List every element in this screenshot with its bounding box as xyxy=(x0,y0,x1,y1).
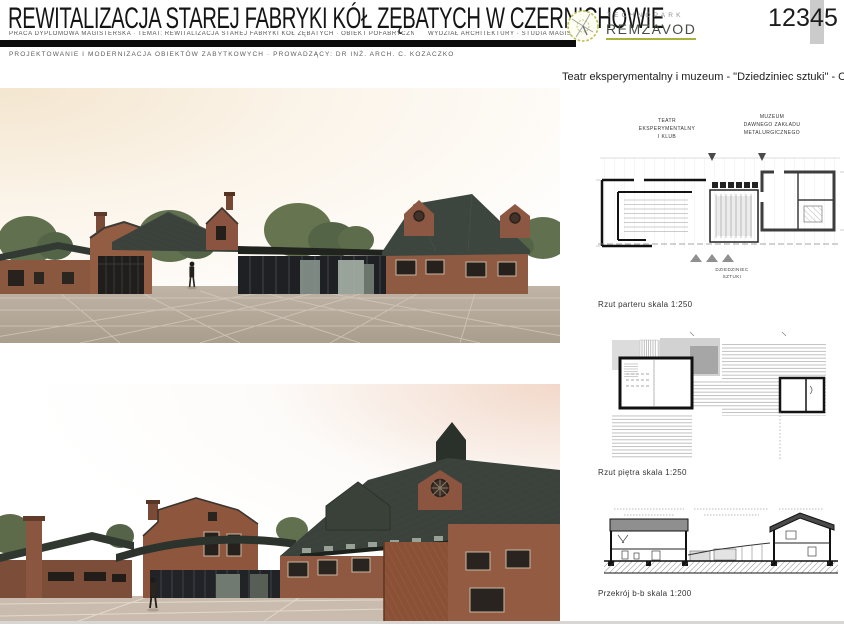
section-caption: Przekrój b-b skala 1:200 xyxy=(598,589,691,598)
logo-name: REMZAVOD xyxy=(606,21,696,40)
plaza xyxy=(0,286,560,343)
meta-line-right: WYDZIAŁ ARCHITEKTURY · STUDIA MAGISTERSK… xyxy=(428,31,576,37)
logo-text-top: TECHNOPARK xyxy=(607,12,684,19)
render-perspective-view xyxy=(0,384,560,624)
meta-line-left: PRACA DYPLOMOWA MAGISTERSKA · TEMAT: REW… xyxy=(9,31,414,37)
section-drawing: Przekrój b-b skala 1:200 xyxy=(594,503,844,603)
pager: 1 2 3 4 5 xyxy=(768,0,838,44)
glass-corridor xyxy=(238,246,392,294)
presentation-board: REWITALIZACJA STAREJ FABRYKI KÓŁ ZĘBATYC… xyxy=(0,0,844,624)
divider-bar xyxy=(0,40,576,47)
pager-digit: 5 xyxy=(824,0,838,44)
courtyard-tree-icons xyxy=(690,254,734,262)
technopark-logo: TECHNOPARK REMZAVOD xyxy=(563,3,693,49)
theatre-label: TEATR EKSPERYMENTALNY I KLUB xyxy=(616,118,718,141)
pager-digit: 3 xyxy=(796,0,810,44)
plan-ground-caption: Rzut parteru skala 1:250 xyxy=(598,300,692,309)
plan-ground-floor: TEATR EKSPERYMENTALNY I KLUB MUZEUM DAWN… xyxy=(594,106,844,316)
course-line: PROJEKTOWANIE I MODERNIZACJA OBIEKTÓW ZA… xyxy=(9,51,454,58)
pager-digit: 4 xyxy=(810,0,824,44)
gear-logo-icon xyxy=(563,5,603,47)
section-graphic xyxy=(594,503,844,583)
pager-digit: 2 xyxy=(782,0,796,44)
render-front-elevation xyxy=(0,88,560,343)
plan-upper-floor: Rzut piętra skala 1:250 xyxy=(594,330,844,482)
courtyard-label: DZIEDZINIEC SZTUKI xyxy=(690,266,774,281)
panel-heading: Teatr eksperymentalny i muzeum - "Dziedz… xyxy=(562,71,844,83)
pager-digit: 1 xyxy=(768,0,782,44)
upper-floor-drawing xyxy=(594,330,844,462)
museum-label: MUZEUM DAWNEGO ZAKŁADU METALURGICZNEGO xyxy=(720,114,824,137)
plan-upper-caption: Rzut piętra skala 1:250 xyxy=(598,468,687,477)
